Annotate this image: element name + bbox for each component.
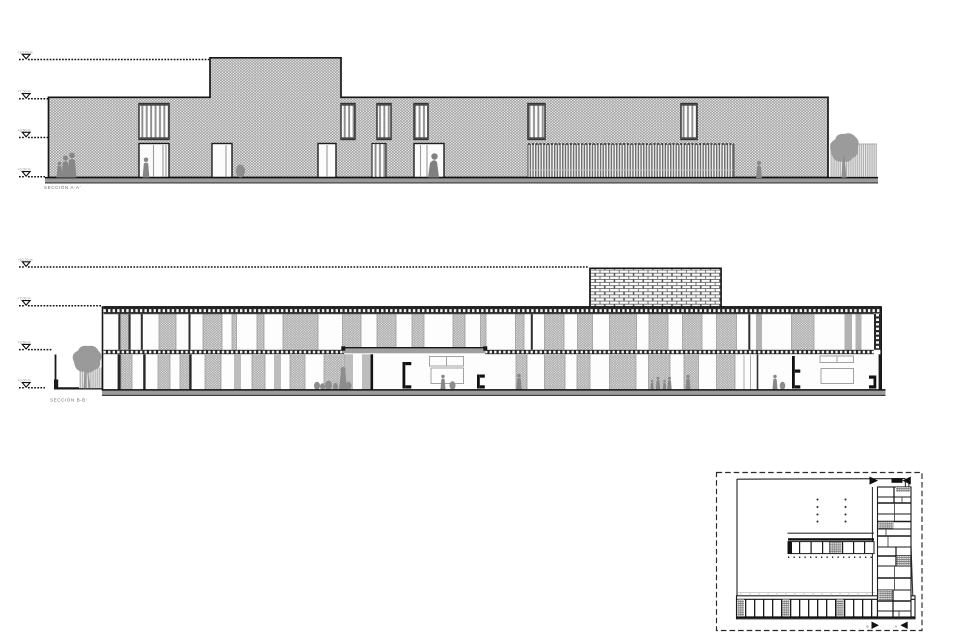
svg-text:+3.50 m: +3.50 m xyxy=(18,340,31,344)
svg-text:A: A xyxy=(895,625,897,629)
svg-text:SECCIÓN A-A': SECCIÓN A-A' xyxy=(44,184,81,190)
svg-text:+7.00 m: +7.00 m xyxy=(18,90,31,94)
svg-text:+7.00 m: +7.00 m xyxy=(18,297,31,301)
svg-text:+0.00 m: +0.00 m xyxy=(18,379,31,383)
svg-text:B: B xyxy=(867,625,869,629)
svg-text:+3.50 m: +3.50 m xyxy=(18,128,31,132)
svg-text:SECCIÓN B-B': SECCIÓN B-B' xyxy=(50,396,87,402)
svg-text:+10.70 m: +10.70 m xyxy=(18,258,33,262)
svg-text:+10.70 m: +10.70 m xyxy=(18,50,33,54)
svg-text:+0.00 m: +0.00 m xyxy=(18,168,31,172)
